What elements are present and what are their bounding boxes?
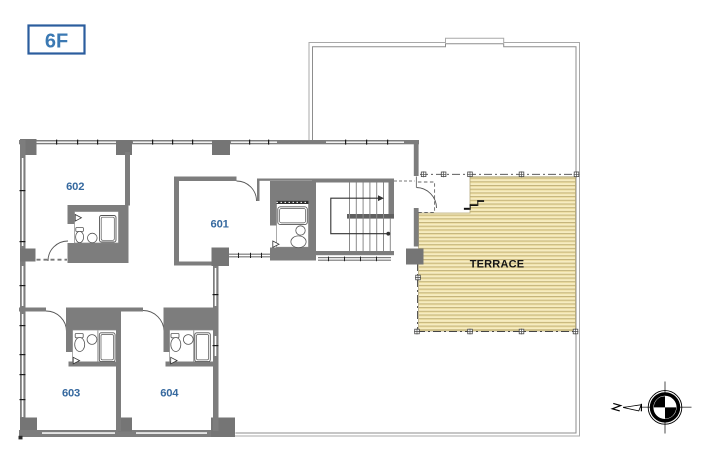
svg-text:602: 602 bbox=[66, 181, 84, 193]
svg-text:603: 603 bbox=[62, 387, 80, 399]
svg-text:604: 604 bbox=[160, 387, 179, 399]
svg-text:6F: 6F bbox=[45, 31, 68, 53]
svg-text:TERRACE: TERRACE bbox=[470, 259, 525, 271]
svg-text:601: 601 bbox=[211, 219, 229, 231]
